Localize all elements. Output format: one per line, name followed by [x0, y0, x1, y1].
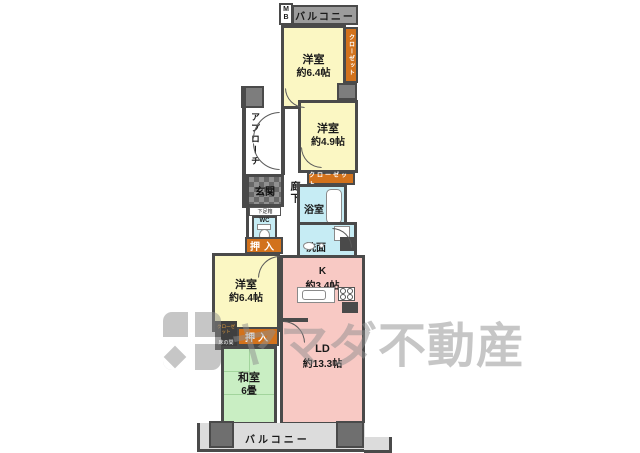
meter-box: M B: [279, 3, 293, 25]
room-western2-name: 洋室: [317, 123, 339, 137]
closet-vertical-label: クローゼット: [347, 34, 356, 76]
kitchen-stove: [338, 287, 355, 301]
balcony-top: バルコニー: [292, 5, 358, 25]
room-japanese: 和室 6畳: [221, 346, 277, 425]
room-western1-size: 約6.4帖: [297, 68, 331, 81]
room-western3-size: 約6.4帖: [229, 293, 263, 306]
kitchen-dark-block: [342, 302, 358, 313]
genkan-label: 玄関: [255, 183, 275, 198]
logo-stripe: [163, 337, 221, 344]
pipe-space-block: [337, 83, 357, 100]
logo-stripe: [188, 312, 195, 370]
closet-small: クローゼット: [215, 321, 237, 337]
logo-quadrant: [163, 344, 188, 370]
stove-burner: [347, 294, 353, 300]
floorplan-canvas: M B バルコニー 洋室 約6.4帖 クローゼット 洋室 約4.9帖 クローゼッ…: [0, 0, 640, 453]
oshiire-upper-label: 押入: [250, 238, 278, 253]
oshiire-lower-label: 押入: [245, 329, 271, 344]
room-western3-name: 洋室: [235, 279, 257, 293]
oshiire-lower: 押入: [237, 327, 279, 346]
wash-basin: [303, 242, 315, 250]
bathtub: [326, 189, 342, 224]
oshiire-upper: 押入: [245, 237, 283, 254]
entrance-genkan: 玄関: [246, 174, 284, 207]
kitchen-sink: [302, 290, 326, 300]
balcony-top-label: バルコニー: [295, 8, 355, 23]
shoe-box-label: 下足箱: [257, 208, 272, 215]
kitchen-name: K: [283, 266, 362, 277]
logo-diamond: [164, 345, 187, 368]
shoe-box: 下足箱: [249, 207, 281, 216]
balcony-step: [364, 437, 392, 453]
ld-name: LD: [283, 343, 362, 355]
balcony-bottom-label: バルコニー: [245, 431, 310, 446]
ld-label: LD 約13.3帖: [283, 343, 362, 370]
stove-burner: [340, 294, 346, 300]
room-japanese-name: 和室: [238, 372, 260, 386]
balcony-pillar-right: [336, 421, 364, 448]
ld-size: 約13.3帖: [283, 355, 362, 370]
balcony-pillar-left: [209, 421, 234, 448]
approach-right-wall: [281, 108, 285, 175]
closet-small-label: クローゼット: [215, 324, 237, 334]
room-japanese-size: 6畳: [241, 386, 257, 399]
room-western1-name: 洋室: [303, 54, 325, 68]
wash-dot: [319, 243, 324, 248]
bathroom-label: 浴室: [304, 201, 324, 216]
closet-vertical: クローゼット: [344, 27, 358, 83]
